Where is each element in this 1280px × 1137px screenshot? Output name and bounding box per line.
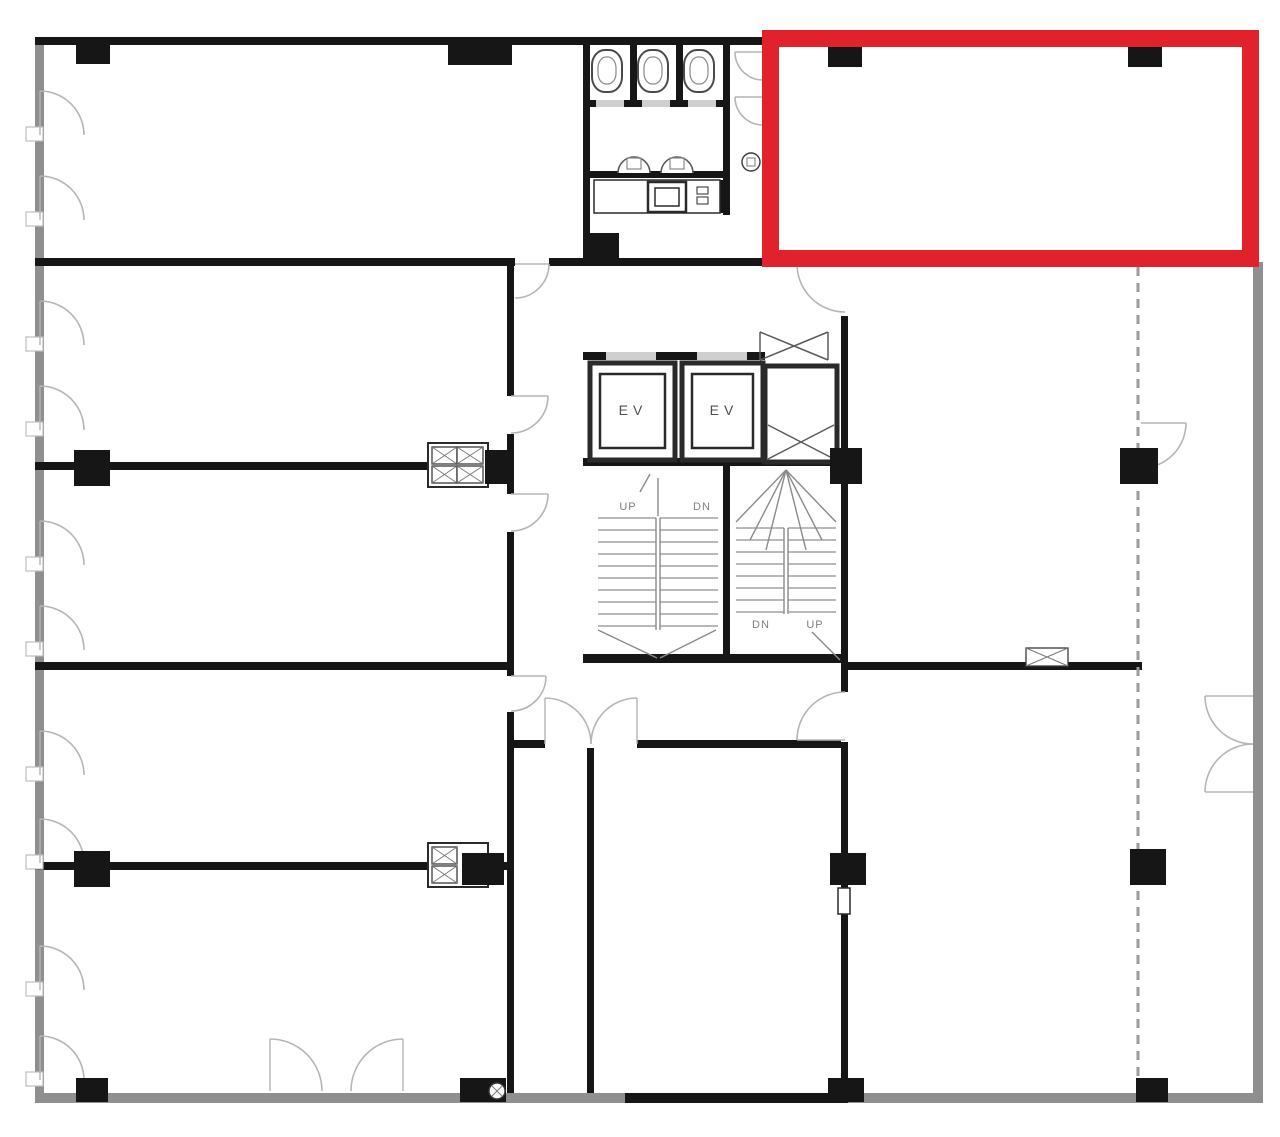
stair-right-up-label: UP <box>806 619 823 631</box>
column <box>462 853 504 885</box>
wall-opening <box>606 352 656 360</box>
wall-segment <box>583 171 730 178</box>
column <box>76 37 110 64</box>
wall-opening <box>507 494 514 532</box>
wall-opening <box>507 396 514 434</box>
wall-segment <box>723 466 730 662</box>
stair-left-up-label: UP <box>619 501 636 513</box>
column <box>76 1078 108 1102</box>
wall-segment <box>630 37 637 104</box>
wall-fixture <box>838 888 850 914</box>
wall-segment <box>625 1093 848 1103</box>
column <box>485 450 511 484</box>
meter-housing <box>583 233 619 263</box>
outer-wall-right <box>1253 262 1263 1103</box>
wall-segment <box>841 258 848 1093</box>
wall-opening <box>642 100 670 107</box>
stair-right-dn-label: DN <box>752 619 770 631</box>
elevator-1-label: EV <box>619 402 648 418</box>
counter-fixture <box>697 187 708 194</box>
column <box>830 448 862 484</box>
column <box>1136 1078 1168 1102</box>
wall-opening <box>841 692 848 742</box>
fire-box-housing <box>448 37 512 65</box>
column <box>1130 849 1166 885</box>
counter-sink-basin <box>655 188 679 206</box>
wall-segment <box>583 37 590 260</box>
counter-fixture <box>697 197 708 204</box>
wall-opening <box>596 100 624 107</box>
column <box>74 450 110 486</box>
wall-opening <box>688 100 716 107</box>
wall-opening <box>841 266 848 316</box>
wall-opening <box>515 258 549 266</box>
cleanout-fixture <box>742 153 760 171</box>
wall-opening <box>507 676 514 712</box>
wall-segment <box>587 745 594 1093</box>
outer-wall-top <box>35 37 765 45</box>
service-shaft <box>765 366 837 462</box>
toilet-icon <box>638 50 668 92</box>
toilet-icon <box>684 50 714 92</box>
column <box>74 851 110 887</box>
wall-opening <box>697 352 747 360</box>
stair-left-dn-label: DN <box>693 501 711 513</box>
column <box>830 853 866 885</box>
elevator-2-label: EV <box>710 402 739 418</box>
column <box>828 47 862 67</box>
wall-segment <box>723 37 730 215</box>
floor-plan: EVEVUPDNDNUP <box>0 0 1280 1137</box>
wall-segment <box>35 258 848 266</box>
wall-segment <box>676 37 683 104</box>
column <box>1128 47 1162 67</box>
wall-segment <box>583 654 848 663</box>
toilet-icon <box>592 50 622 92</box>
column <box>1120 448 1158 484</box>
wall-segment <box>845 662 1142 670</box>
wall-segment <box>35 662 511 670</box>
floor-plan-svg: EVEVUPDNDNUP <box>0 0 1280 1137</box>
column <box>828 1078 864 1102</box>
